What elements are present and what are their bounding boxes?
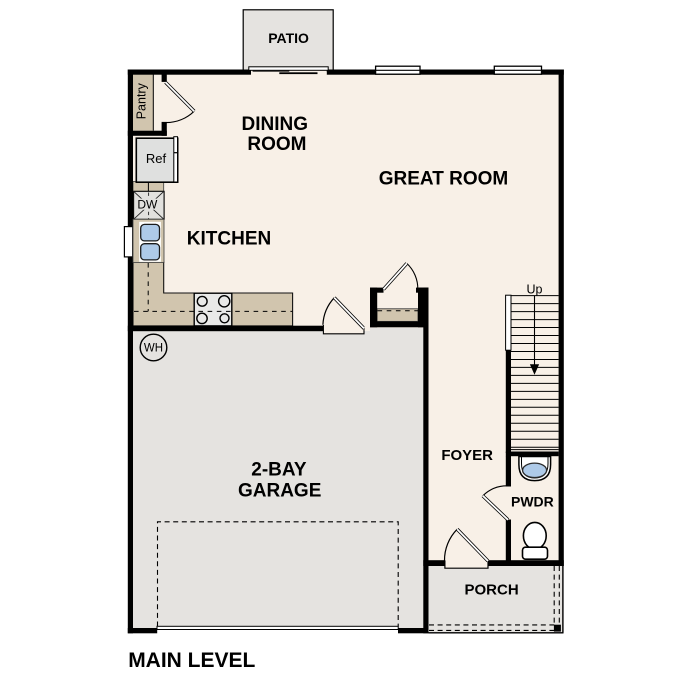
svg-text:DINING: DINING (242, 114, 309, 135)
svg-text:PATIO: PATIO (268, 30, 309, 46)
svg-text:PORCH: PORCH (465, 582, 519, 599)
svg-text:PWDR: PWDR (511, 493, 554, 509)
svg-text:GREAT ROOM: GREAT ROOM (379, 169, 508, 190)
svg-text:Ref: Ref (146, 151, 167, 166)
svg-text:WH: WH (144, 343, 163, 355)
svg-text:DW: DW (137, 197, 158, 211)
svg-text:Up: Up (527, 282, 543, 296)
svg-text:KITCHEN: KITCHEN (187, 228, 271, 249)
svg-text:GARAGE: GARAGE (238, 480, 321, 501)
svg-text:2-BAY: 2-BAY (251, 460, 307, 481)
svg-text:Pantry: Pantry (135, 82, 149, 119)
svg-text:MAIN LEVEL: MAIN LEVEL (128, 649, 255, 672)
svg-text:FOYER: FOYER (441, 447, 493, 464)
svg-text:ROOM: ROOM (247, 134, 306, 155)
